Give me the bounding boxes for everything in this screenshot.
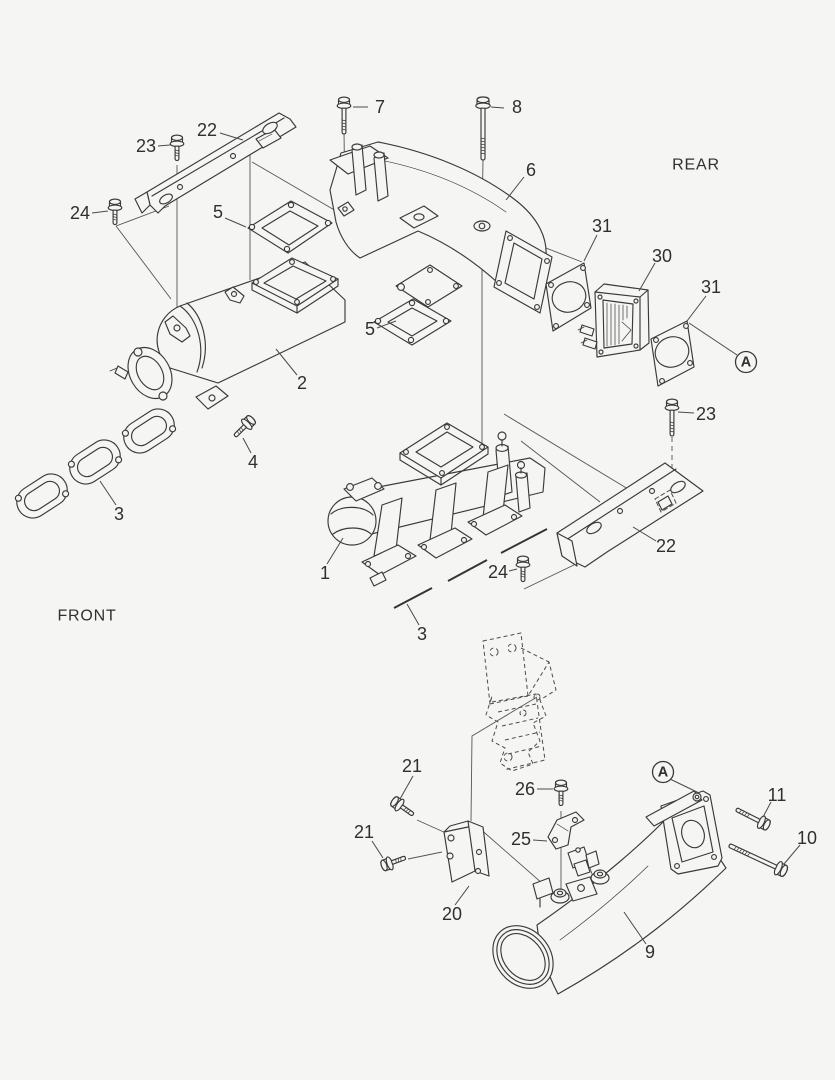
exploded-parts-diagram: REARFRONT AA 782223245631303125431232224… — [0, 0, 835, 1080]
callout-label: 22 — [656, 536, 676, 556]
callout-label: 30 — [652, 246, 672, 266]
callout-label: 21 — [402, 756, 422, 776]
callout-label: 3 — [417, 624, 427, 644]
callout-label: 9 — [645, 942, 655, 962]
callout-label: 3 — [114, 504, 124, 524]
callout-label: 31 — [701, 277, 721, 297]
callout-label: 24 — [70, 203, 90, 223]
callout-label: 23 — [136, 136, 156, 156]
callout-label: 24 — [488, 562, 508, 582]
callout-label: 7 — [375, 97, 385, 117]
ref-marker-label: A — [658, 765, 669, 781]
callout-label: 2 — [297, 373, 307, 393]
orientation-label: REAR — [672, 157, 720, 174]
callout-label: 10 — [797, 828, 817, 848]
callout-label: 31 — [592, 216, 612, 236]
callout-label: 25 — [511, 829, 531, 849]
callout-label: 20 — [442, 904, 462, 924]
callout-label: 23 — [696, 404, 716, 424]
callout-label: 8 — [512, 97, 522, 117]
callout-label: 4 — [248, 452, 258, 472]
part-20-bracket — [444, 821, 489, 882]
ref-marker-label: A — [741, 355, 752, 371]
orientation-label: FRONT — [57, 608, 116, 625]
callout-label: 21 — [354, 822, 374, 842]
callout-label: 22 — [197, 120, 217, 140]
callout-label: 1 — [320, 563, 330, 583]
callout-label: 5 — [213, 202, 223, 222]
callout-label: 5 — [365, 319, 375, 339]
callout-label: 6 — [526, 160, 536, 180]
callout-label: 26 — [515, 779, 535, 799]
callout-label: 11 — [768, 785, 787, 805]
parts-diagram-page: REARFRONT AA 782223245631303125431232224… — [0, 0, 835, 1080]
